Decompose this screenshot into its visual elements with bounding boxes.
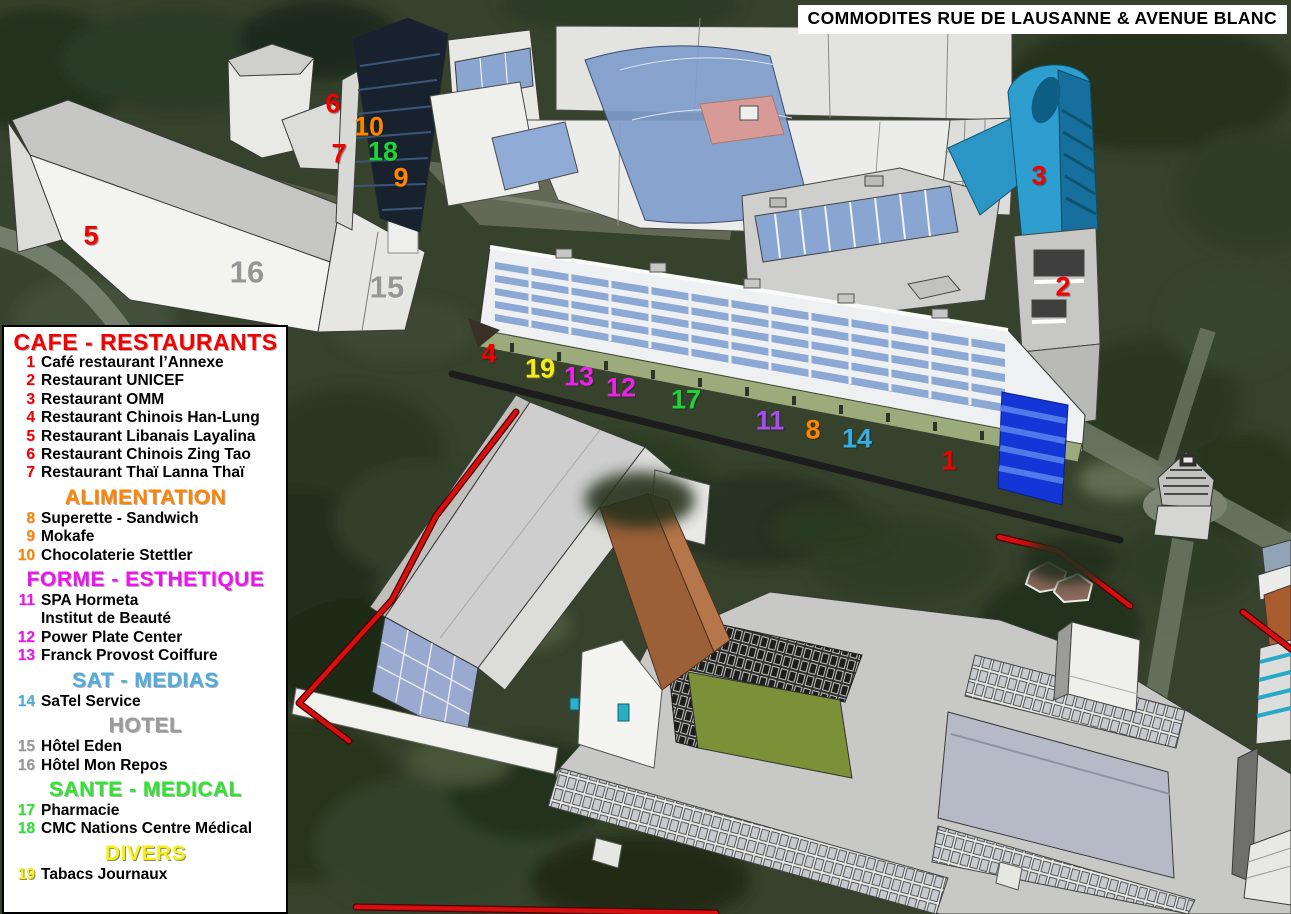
legend-item-number: 13	[10, 647, 35, 665]
legend-item-label: Chocolaterie Stettler	[41, 547, 193, 565]
legend-item-number: 6	[10, 446, 35, 464]
map-marker-1: 1	[941, 448, 956, 475]
legend-item-11b: Institut de Beauté	[10, 610, 281, 628]
map-marker-18: 18	[368, 139, 398, 166]
legend-item-number: 18	[10, 820, 35, 838]
map-marker-16: 16	[230, 257, 264, 288]
map-marker-6: 6	[325, 91, 340, 118]
map-marker-15: 15	[370, 272, 404, 303]
map-marker-17: 17	[671, 387, 701, 414]
legend-item-label: Power Plate Center	[41, 629, 182, 647]
legend-item-label: Café restaurant l’Annexe	[41, 354, 224, 372]
map-marker-8: 8	[805, 417, 820, 444]
legend-item-number: 3	[10, 391, 35, 409]
legend-panel: CAFE - RESTAURANTS 1Café restaurant l’An…	[2, 325, 288, 914]
map-marker-5: 5	[83, 223, 98, 250]
legend-item-number: 12	[10, 629, 35, 647]
legend-item-label: Institut de Beauté	[41, 610, 171, 628]
legend-item-19: 19Tabacs Journaux	[10, 866, 281, 884]
legend-section-hotel-title: HOTEL	[10, 714, 281, 738]
legend-item-label: Restaurant Chinois Han-Lung	[41, 409, 260, 427]
map-title: COMMODITES RUE DE LAUSANNE & AVENUE BLAN…	[798, 5, 1287, 34]
legend-item-number: 7	[10, 464, 35, 482]
legend-item-label: Hôtel Eden	[41, 738, 122, 756]
map-marker-11: 11	[756, 408, 785, 435]
legend-item-number: 19	[10, 866, 35, 884]
legend-item-number: 8	[10, 510, 35, 528]
legend-item-label: SPA Hormeta	[41, 592, 138, 610]
legend-item-12: 12Power Plate Center	[10, 629, 281, 647]
legend-item-number: 9	[10, 528, 35, 546]
legend-item-11: 11SPA Hormeta	[10, 592, 281, 610]
legend-item-3: 3Restaurant OMM	[10, 391, 281, 409]
legend-item-number: 15	[10, 738, 35, 756]
map-marker-12: 12	[606, 375, 636, 402]
legend-item-label: Superette - Sandwich	[41, 510, 199, 528]
legend-item-label: Pharmacie	[41, 802, 119, 820]
legend-item-number: 4	[10, 409, 35, 427]
legend-item-number: 1	[10, 354, 35, 372]
map-marker-14: 14	[842, 426, 872, 453]
legend-item-14: 14SaTel Service	[10, 693, 281, 711]
legend-item-9: 9Mokafe	[10, 528, 281, 546]
legend-section-alimentation-title: ALIMENTATION	[10, 486, 281, 510]
map-marker-4: 4	[481, 341, 496, 368]
map-marker-9: 9	[393, 165, 408, 192]
legend-section-cafe-title: CAFE - RESTAURANTS	[10, 330, 281, 354]
legend-section-sat-title: SAT - MEDIAS	[10, 669, 281, 693]
legend-item-18: 18CMC Nations Centre Médical	[10, 820, 281, 838]
legend-item-number: 16	[10, 757, 35, 775]
legend-item-label: Restaurant Libanais Layalina	[41, 428, 256, 446]
legend-item-number: 2	[10, 372, 35, 390]
map-marker-13: 13	[564, 364, 594, 391]
legend-item-1: 1Café restaurant l’Annexe	[10, 354, 281, 372]
legend-item-label: Tabacs Journaux	[41, 866, 167, 884]
legend-item-2: 2Restaurant UNICEF	[10, 372, 281, 390]
legend-item-label: Franck Provost Coiffure	[41, 647, 218, 665]
legend-section-forme-title: FORME - ESTHETIQUE	[10, 568, 281, 592]
legend-item-16: 16Hôtel Mon Repos	[10, 757, 281, 775]
legend-item-7: 7Restaurant Thaï Lanna Thaï	[10, 464, 281, 482]
map-marker-2: 2	[1055, 274, 1070, 301]
legend-item-label: SaTel Service	[41, 693, 141, 711]
legend-item-number: 5	[10, 428, 35, 446]
map-marker-19: 19	[525, 356, 555, 383]
legend-section-sante-title: SANTE - MEDICAL	[10, 778, 281, 802]
legend-item-label: CMC Nations Centre Médical	[41, 820, 252, 838]
legend-item-number: 17	[10, 802, 35, 820]
legend-item-4: 4Restaurant Chinois Han-Lung	[10, 409, 281, 427]
legend-item-17: 17Pharmacie	[10, 802, 281, 820]
legend-item-6: 6Restaurant Chinois Zing Tao	[10, 446, 281, 464]
legend-item-label: Restaurant Chinois Zing Tao	[41, 446, 251, 464]
legend-item-8: 8Superette - Sandwich	[10, 510, 281, 528]
legend-section-divers-title: DIVERS	[10, 842, 281, 866]
map-marker-7: 7	[331, 141, 346, 168]
legend-item-label: Restaurant Thaï Lanna Thaï	[41, 464, 244, 482]
map-marker-3: 3	[1031, 163, 1046, 190]
map-stage: COMMODITES RUE DE LAUSANNE & AVENUE BLAN…	[0, 0, 1291, 914]
legend-item-label: Restaurant UNICEF	[41, 372, 184, 390]
legend-item-label: Mokafe	[41, 528, 94, 546]
legend-item-label: Hôtel Mon Repos	[41, 757, 168, 775]
legend-item-number: 11	[10, 592, 35, 610]
legend-item-number: 10	[10, 547, 35, 565]
legend-item-10: 10Chocolaterie Stettler	[10, 547, 281, 565]
legend-item-15: 15Hôtel Eden	[10, 738, 281, 756]
legend-item-label: Restaurant OMM	[41, 391, 164, 409]
legend-item-13: 13Franck Provost Coiffure	[10, 647, 281, 665]
legend-item-number: 14	[10, 693, 35, 711]
blue-stairwell-stripes	[998, 392, 1068, 505]
legend-item-5: 5Restaurant Libanais Layalina	[10, 428, 281, 446]
